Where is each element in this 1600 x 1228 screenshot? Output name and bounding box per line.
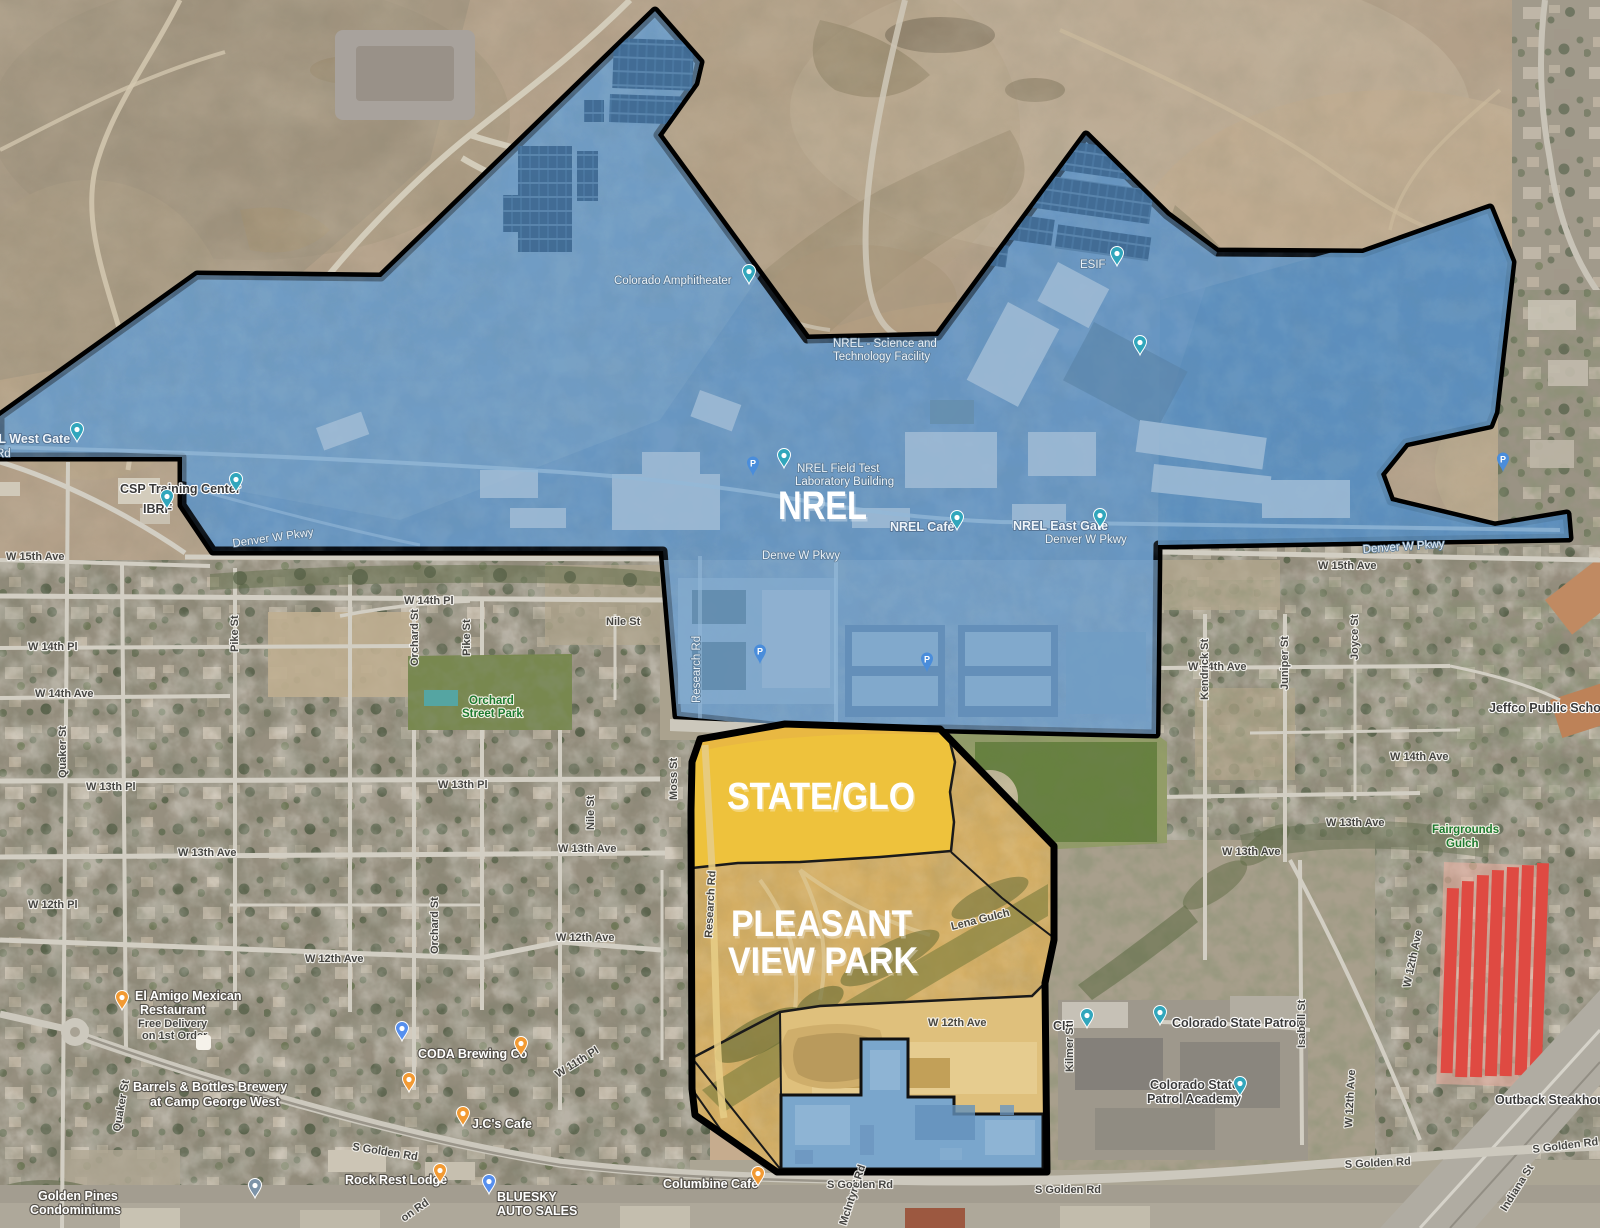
- svg-text:W 13th Ave: W 13th Ave: [178, 847, 236, 859]
- svg-text:Condominiums: Condominiums: [30, 1203, 121, 1217]
- svg-text:Orchard St: Orchard St: [409, 609, 421, 666]
- svg-text:Street Park: Street Park: [462, 708, 523, 720]
- svg-text:W 14th Ave: W 14th Ave: [1188, 661, 1246, 673]
- svg-text:W 15th Ave: W 15th Ave: [6, 551, 64, 563]
- svg-text:Colorado State: Colorado State: [1150, 1078, 1239, 1092]
- svg-text:Pike St: Pike St: [461, 619, 473, 656]
- svg-text:NREL East Gate: NREL East Gate: [1013, 519, 1108, 533]
- svg-text:BLUESKY: BLUESKY: [497, 1190, 557, 1204]
- svg-text:NREL Café: NREL Café: [890, 520, 954, 534]
- svg-text:W 13th Ave: W 13th Ave: [558, 843, 616, 855]
- svg-text:Nile St: Nile St: [606, 616, 641, 628]
- svg-text:W 13th Ave: W 13th Ave: [1326, 817, 1384, 829]
- svg-text:Moss St: Moss St: [668, 757, 680, 800]
- svg-text:Colorado State Patrol: Colorado State Patrol: [1172, 1016, 1300, 1030]
- svg-text:Orchard: Orchard: [469, 695, 514, 707]
- svg-text:W 12th Pl: W 12th Pl: [28, 899, 78, 911]
- svg-text:Pike St: Pike St: [229, 615, 241, 652]
- svg-text:P: P: [1500, 455, 1506, 465]
- svg-text:STATE/GLO: STATE/GLO: [727, 776, 915, 818]
- svg-text:Patrol Academy: Patrol Academy: [1147, 1092, 1241, 1106]
- svg-text:Rock Rest Lodge: Rock Rest Lodge: [345, 1173, 447, 1187]
- svg-text:Laboratory Building: Laboratory Building: [795, 476, 894, 488]
- svg-text:Restaurant: Restaurant: [140, 1003, 206, 1017]
- svg-text:W 14th Pl: W 14th Pl: [404, 595, 454, 607]
- svg-text:W 13th Pl: W 13th Pl: [438, 779, 488, 791]
- svg-text:S Golden Rd: S Golden Rd: [1035, 1184, 1101, 1196]
- svg-text:VIEW PARK: VIEW PARK: [728, 940, 918, 981]
- svg-text:W 12th Ave: W 12th Ave: [305, 953, 363, 965]
- svg-text:Fairgrounds: Fairgrounds: [1432, 824, 1499, 836]
- svg-text:NREL Field Test: NREL Field Test: [797, 463, 880, 475]
- svg-text:P: P: [924, 655, 930, 665]
- svg-text:W 14th Pl: W 14th Pl: [28, 641, 78, 653]
- svg-text:CODA Brewing Co: CODA Brewing Co: [418, 1047, 528, 1061]
- svg-text:W 13th Ave: W 13th Ave: [1222, 846, 1280, 858]
- svg-text:Kilmer St: Kilmer St: [1064, 1023, 1076, 1072]
- svg-text:W 12th Ave: W 12th Ave: [556, 932, 614, 944]
- svg-text:NREL - Science and: NREL - Science and: [833, 338, 937, 350]
- svg-text:Technology Facility: Technology Facility: [833, 351, 930, 363]
- svg-text:Research Rd: Research Rd: [691, 636, 703, 703]
- svg-text:ESIF: ESIF: [1080, 259, 1106, 271]
- svg-text:P: P: [750, 459, 756, 469]
- svg-text:J.C's Cafe: J.C's Cafe: [472, 1117, 532, 1131]
- svg-text:Kendrick St: Kendrick St: [1199, 639, 1211, 700]
- svg-text:Denver W Pkwy: Denver W Pkwy: [1045, 534, 1127, 546]
- svg-text:at Camp George West: at Camp George West: [150, 1095, 281, 1109]
- svg-text:Colorado Amphitheater: Colorado Amphitheater: [614, 275, 732, 287]
- svg-text:Orchard St: Orchard St: [429, 897, 441, 954]
- svg-text:W 12th Ave: W 12th Ave: [928, 1017, 986, 1029]
- svg-text:Isabell St: Isabell St: [1296, 999, 1308, 1048]
- svg-text:W 14th Ave: W 14th Ave: [1390, 751, 1448, 763]
- svg-text:Denve W Pkwy: Denve W Pkwy: [762, 550, 840, 562]
- svg-text:CSP Training Center: CSP Training Center: [120, 482, 241, 496]
- svg-text:W 14th Ave: W 14th Ave: [35, 688, 93, 700]
- svg-text:Gulch: Gulch: [1446, 838, 1479, 850]
- svg-text:NREL: NREL: [778, 484, 867, 528]
- svg-text:El Amigo Mexican: El Amigo Mexican: [135, 989, 242, 1003]
- svg-text:W 15th Ave: W 15th Ave: [1318, 560, 1376, 572]
- svg-text:Nile St: Nile St: [585, 795, 597, 830]
- svg-text:Outback Steakhouse: Outback Steakhouse: [1495, 1093, 1600, 1107]
- svg-text:Barrels & Bottles Brewery: Barrels & Bottles Brewery: [133, 1080, 287, 1094]
- svg-text:W 13th Pl: W 13th Pl: [86, 781, 136, 793]
- svg-text:Quaker St: Quaker St: [57, 726, 69, 778]
- svg-text:P: P: [757, 647, 763, 657]
- svg-text:Jeffco Public Schools: Jeffco Public Schools: [1489, 701, 1600, 715]
- svg-text:AUTO SALES: AUTO SALES: [497, 1204, 577, 1218]
- svg-text:tte Rd: tte Rd: [0, 448, 11, 460]
- svg-text:PLEASANT: PLEASANT: [731, 903, 912, 944]
- svg-text:Golden Pines: Golden Pines: [38, 1189, 118, 1203]
- svg-text:NREL West Gate: NREL West Gate: [0, 432, 70, 446]
- svg-text:Columbine Cafe: Columbine Cafe: [663, 1177, 758, 1191]
- svg-text:Joyce St: Joyce St: [1349, 614, 1361, 660]
- svg-text:Juniper St: Juniper St: [1279, 636, 1291, 690]
- svg-text:Free Delivery: Free Delivery: [138, 1018, 208, 1030]
